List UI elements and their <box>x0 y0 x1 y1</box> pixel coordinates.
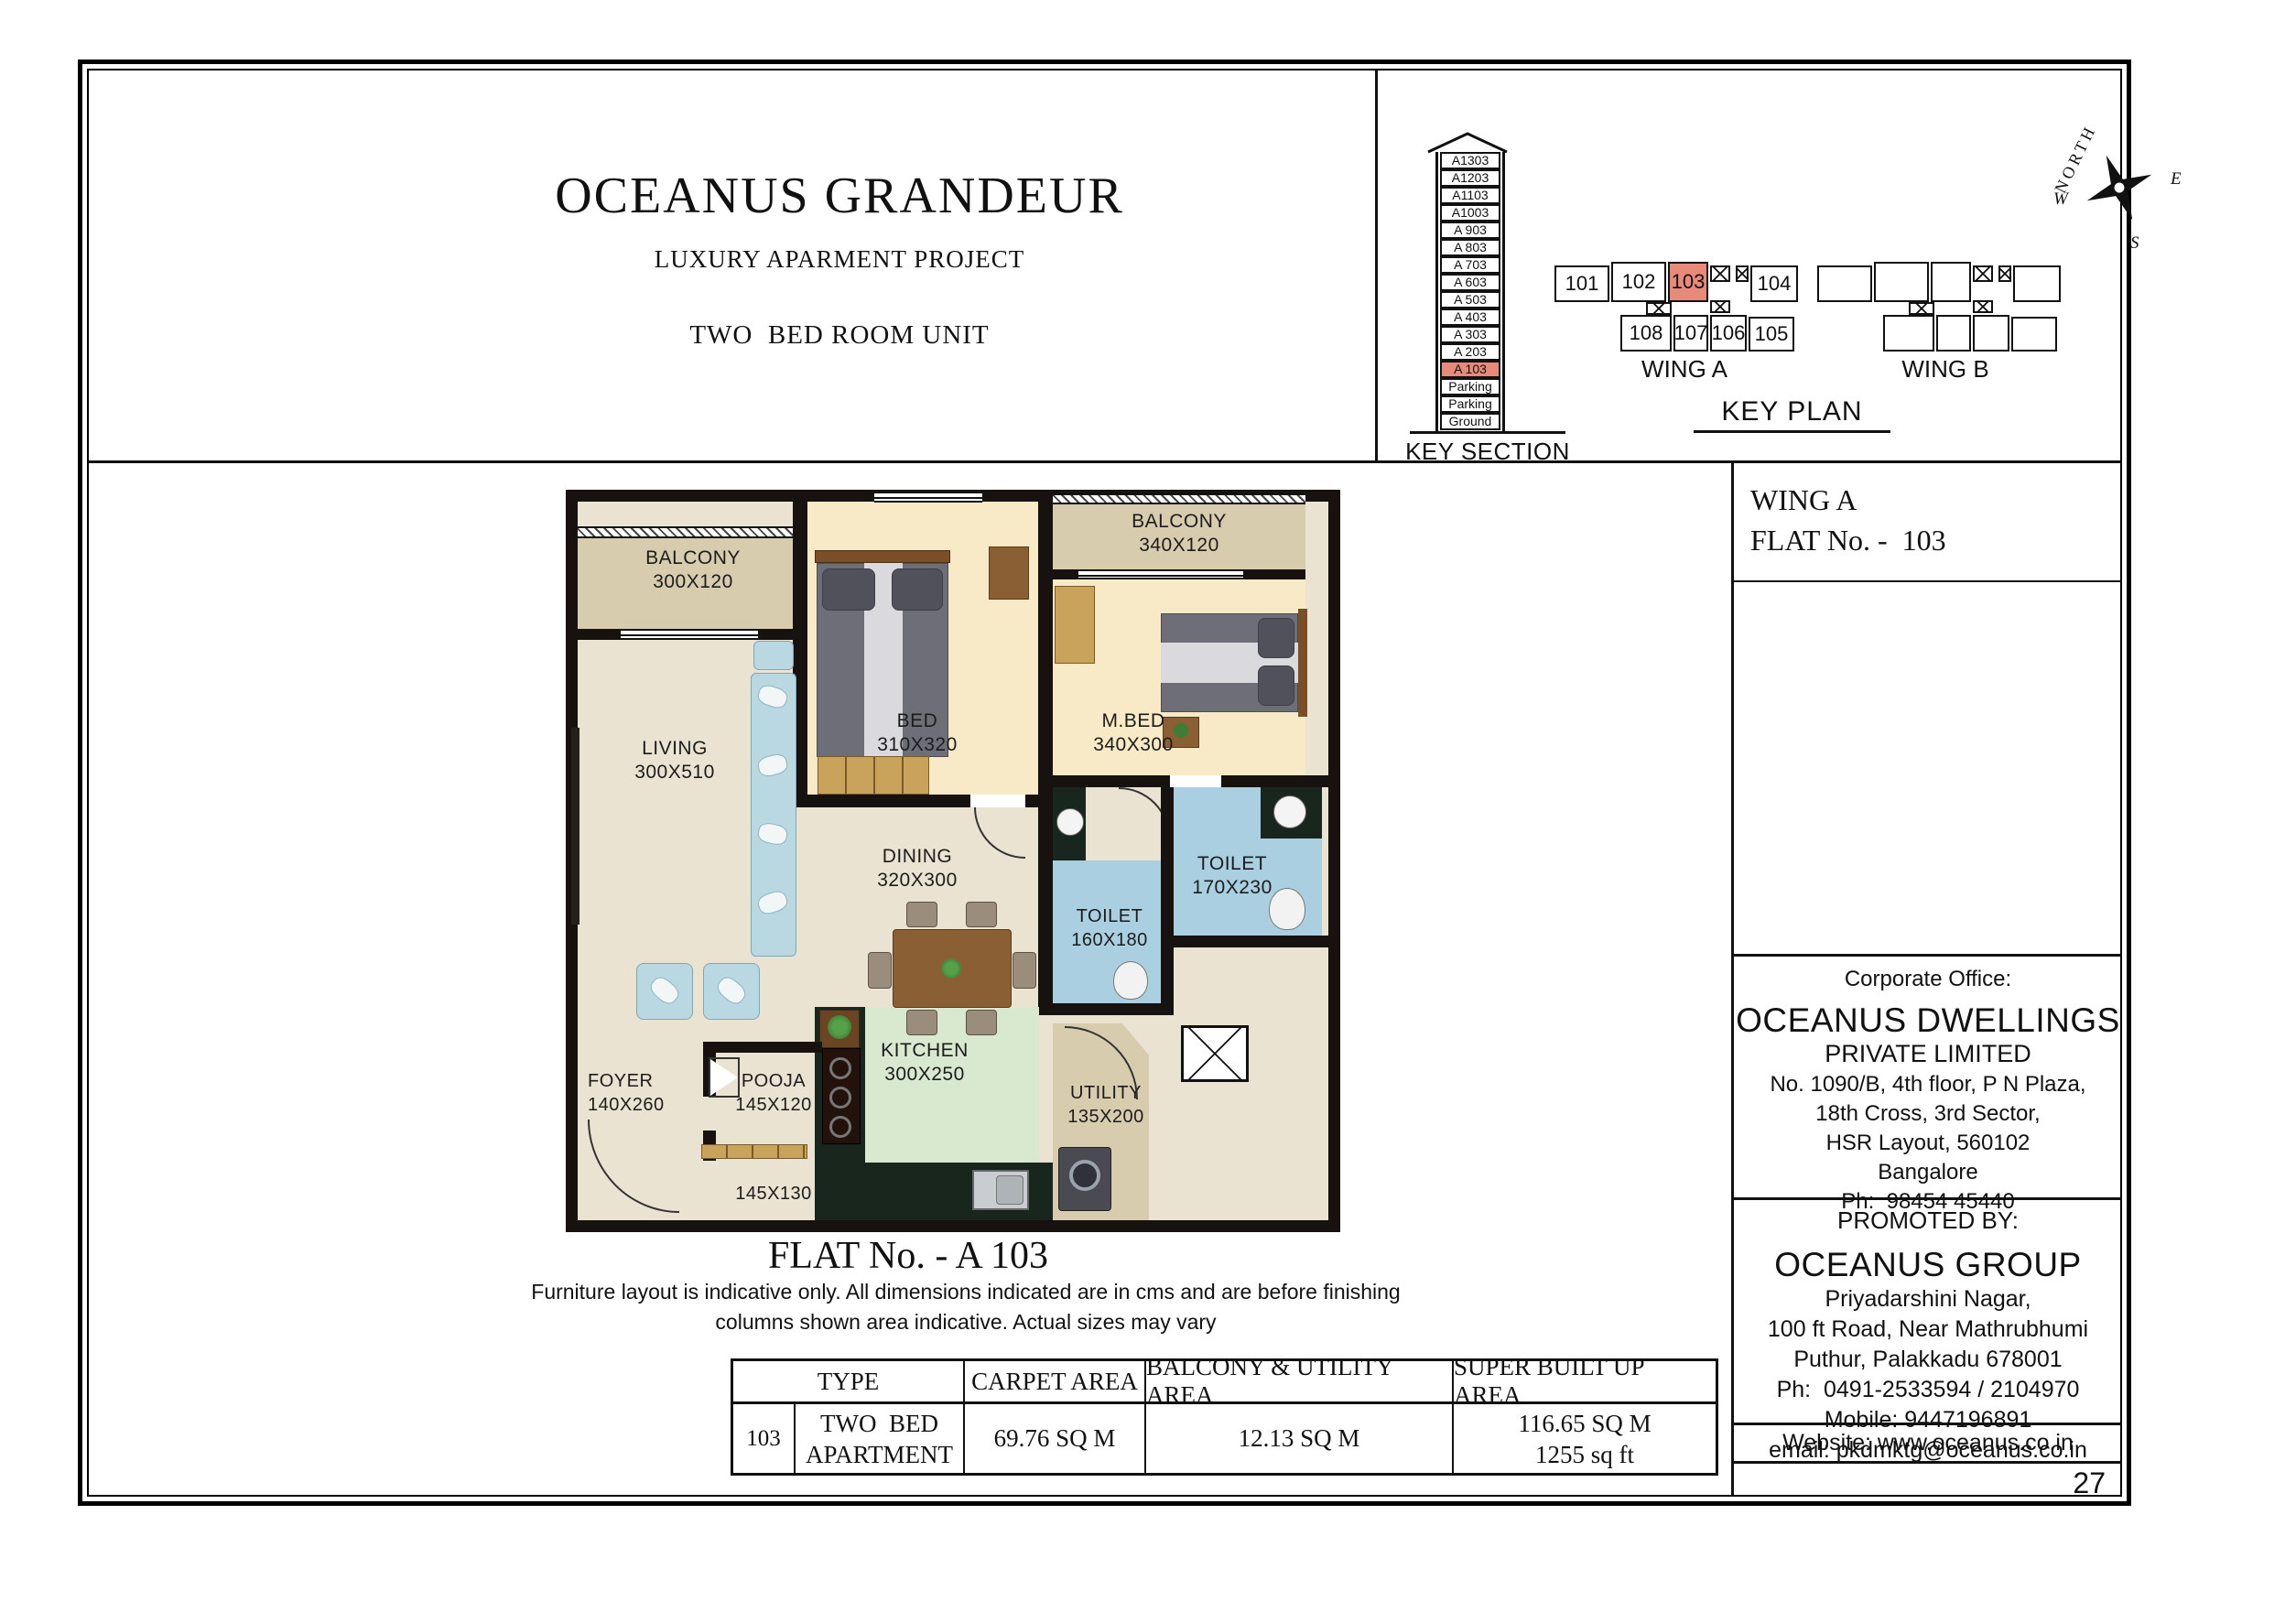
tower-floor: A1103 <box>1440 187 1500 204</box>
promoted-by-heading: PROMOTED BY: <box>1736 1206 2120 1235</box>
tower-floor: A 303 <box>1440 326 1500 343</box>
sidebar-vertical-rule <box>1731 462 1734 1497</box>
bed-headboard <box>815 550 950 563</box>
window-band-icon <box>1053 493 1305 504</box>
wall <box>703 1042 822 1053</box>
tower-ground-line <box>1410 431 1565 434</box>
window-icon <box>621 629 758 640</box>
flat-108: 108 <box>1620 315 1672 352</box>
area-table: TYPE CARPET AREA BALCONY & UTILITY AREA … <box>731 1358 1718 1476</box>
door-gap <box>1170 775 1221 787</box>
promoter-company-name: OCEANUS GROUP <box>1736 1246 2120 1284</box>
key-plan-wing-a: 101 102 103 104 108 107 106 105 <box>1554 260 1800 352</box>
stair-icon <box>1973 265 1993 282</box>
sofa-long <box>751 673 796 957</box>
table-cell-balcony-utility-area: 12.13 SQ M <box>1144 1404 1452 1473</box>
page-number: 27 <box>2051 1466 2106 1500</box>
tower-roof-outline <box>1426 130 1509 154</box>
label-toilet-mid: TOILET 160X180 <box>1036 904 1183 952</box>
flat-103-highlighted: 103 <box>1668 262 1708 302</box>
corporate-company-name: OCEANUS DWELLINGS <box>1736 1001 2120 1040</box>
sidebar-flat-no: FLAT No. - 103 <box>1750 524 1946 557</box>
corporate-office-block: Corporate Office: OCEANUS DWELLINGS PRIV… <box>1736 967 2120 1217</box>
stair-icon <box>1646 302 1672 315</box>
tower-floor-highlighted: A 103 <box>1440 361 1500 378</box>
table-cell-carpet-area: 69.76 SQ M <box>963 1404 1144 1473</box>
promoter-address-line: Priyadarshini Nagar, <box>1736 1284 2120 1315</box>
corporate-address-line: Bangalore <box>1736 1158 2120 1187</box>
stair-icon <box>1909 302 1934 315</box>
plant-icon <box>828 1015 851 1039</box>
sofa-end <box>753 641 794 670</box>
label-pooja: POOJA 145X120 <box>709 1069 838 1117</box>
flat-101: 101 <box>1554 265 1609 302</box>
corporate-office-heading: Corporate Office: <box>1736 967 2120 992</box>
washer-door-icon <box>1069 1160 1100 1191</box>
table-cell-flat-no: 103 <box>733 1404 794 1473</box>
label-dining: DINING 320X300 <box>826 845 1009 893</box>
wing-b-flat <box>1883 315 1934 352</box>
label-kitchen: KITCHEN 300X250 <box>833 1039 1016 1087</box>
tower-floor: A 403 <box>1440 308 1500 326</box>
label-toilet-right: TOILET 170X230 <box>1159 852 1305 900</box>
tower-floor: A1203 <box>1440 169 1500 187</box>
threshold <box>701 1144 807 1159</box>
tower-floor: A 603 <box>1440 274 1500 291</box>
table-cell-type: TWO BED APARTMENT <box>794 1404 963 1473</box>
sink-bowl <box>996 1175 1023 1205</box>
flat-title: FLAT No. - A 103 <box>688 1234 1128 1278</box>
burner-icon <box>829 1116 851 1138</box>
tower-floor: Parking <box>1440 395 1500 413</box>
mbed-headboard <box>1298 609 1307 717</box>
stair-icon <box>1736 265 1749 282</box>
corporate-address-line: HSR Layout, 560102 <box>1736 1129 2120 1158</box>
key-plan-label: KEY PLAN <box>1694 396 1890 433</box>
tower-floor: A 803 <box>1440 239 1500 256</box>
stair-icon <box>1710 265 1730 282</box>
shaft-x-box <box>1181 1025 1249 1082</box>
wing-b-flat <box>2011 317 2057 352</box>
label-balcony-left: BALCONY 300X120 <box>583 546 803 594</box>
tower-floor: A1003 <box>1440 204 1500 222</box>
tower-floor: A 203 <box>1440 343 1500 361</box>
mbed-desk <box>1055 586 1095 664</box>
plant-icon <box>941 958 961 979</box>
promoter-phone: Ph: 0491-2533594 / 2104970 <box>1736 1375 2120 1405</box>
disclaimer-line-1: Furniture layout is indicative only. All… <box>508 1280 1424 1304</box>
sidebar-wing-label: WING A <box>1750 483 1857 517</box>
corporate-company-suffix: PRIVATE LIMITED <box>1736 1040 2120 1068</box>
wing-b-flat <box>2013 265 2061 302</box>
wing-b-flat <box>1936 315 1971 352</box>
wing-b-flat <box>1931 262 1971 302</box>
label-balcony-right: BALCONY 340X120 <box>1088 510 1271 557</box>
table-header-carpet: CARPET AREA <box>963 1361 1144 1401</box>
flat-105: 105 <box>1749 317 1794 352</box>
header-bottom-rule <box>89 460 2120 463</box>
header-vertical-rule <box>1375 70 1378 461</box>
table-header-type: TYPE <box>733 1361 963 1401</box>
project-subtitle: LUXURY APARMENT PROJECT <box>428 245 1251 274</box>
desk <box>989 546 1029 600</box>
tower-floor: A 903 <box>1440 222 1500 239</box>
website-label: Website: www.oceanus.co.in <box>1736 1430 2120 1456</box>
label-foyer: FOYER 140X260 <box>575 1069 694 1117</box>
label-utility: UTILITY 135X200 <box>1033 1081 1179 1129</box>
compass-east-label: E <box>2171 169 2182 189</box>
stair-icon <box>1710 300 1730 313</box>
label-bed: BED 310X320 <box>826 709 1009 757</box>
label-passage: 145X130 <box>709 1182 838 1206</box>
wall <box>1038 1003 1174 1015</box>
label-living: LIVING 300X510 <box>583 737 766 784</box>
table-header-balcony-utility: BALCONY & UTILITY AREA <box>1144 1361 1452 1401</box>
wall <box>1161 936 1340 947</box>
flat-104: 104 <box>1750 265 1798 302</box>
north-compass: NORTH E S W <box>2046 96 2211 261</box>
wing-b-label: WING B <box>1854 355 2037 384</box>
label-mbed: M.BED 340X300 <box>1060 709 1207 757</box>
promoted-by-block: PROMOTED BY: OCEANUS GROUP Priyadarshini… <box>1736 1206 2120 1466</box>
wardrobe <box>818 756 929 795</box>
tower-floor-stack: A1303 A1203 A1103 A1003 A 903 A 803 A 70… <box>1440 152 1500 430</box>
wing-b-flat <box>1973 315 2009 352</box>
flat-107: 107 <box>1673 315 1708 352</box>
promoter-address-line: Puthur, Palakkadu 678001 <box>1736 1345 2120 1375</box>
tower-floor: A1303 <box>1440 152 1500 169</box>
wing-b-flat <box>1874 262 1929 302</box>
wing-b-flat <box>1817 265 1872 302</box>
promoter-address-line: 100 ft Road, Near Mathrubhumi <box>1736 1315 2120 1345</box>
unit-type-title: TWO BED ROOM UNIT <box>428 320 1251 351</box>
compass-south-label: S <box>2130 233 2139 254</box>
flat-106: 106 <box>1710 315 1747 352</box>
key-section-label: KEY SECTION <box>1401 438 1575 466</box>
tower-floor: A 503 <box>1440 291 1500 308</box>
flat-102: 102 <box>1611 262 1666 302</box>
window-icon <box>1078 569 1243 579</box>
key-plan-wing-b <box>1817 260 2063 352</box>
key-section-tower: A1303 A1203 A1103 A1003 A 903 A 803 A 70… <box>1410 128 1575 467</box>
table-cell-super-builtup-area: 116.65 SQ M 1255 sq ft <box>1452 1404 1716 1473</box>
table-header-super-builtup: SUPER BUILT UP AREA <box>1452 1361 1716 1401</box>
project-title: OCEANUS GRANDEUR <box>428 167 1251 225</box>
disclaimer-line-2: columns shown area indicative. Actual si… <box>508 1310 1424 1335</box>
tv-unit <box>571 728 579 925</box>
tower-floor: Ground <box>1440 413 1500 430</box>
door-gap <box>970 795 1025 807</box>
wing-a-label: WING A <box>1593 355 1776 384</box>
corporate-address-line: 18th Cross, 3rd Sector, <box>1736 1099 2120 1129</box>
tower-floor: Parking <box>1440 378 1500 395</box>
corporate-address-line: No. 1090/B, 4th floor, P N Plaza, <box>1736 1070 2120 1099</box>
stair-icon <box>1998 265 2011 282</box>
compass-west-label: W <box>2053 189 2068 210</box>
stair-icon <box>1973 300 1993 313</box>
window-icon <box>874 492 982 503</box>
window-band-icon <box>578 526 793 538</box>
floor-plan: BALCONY 300X120 LIVING 300X510 BED 310X3… <box>566 490 1340 1232</box>
tower-floor: A 703 <box>1440 256 1500 274</box>
